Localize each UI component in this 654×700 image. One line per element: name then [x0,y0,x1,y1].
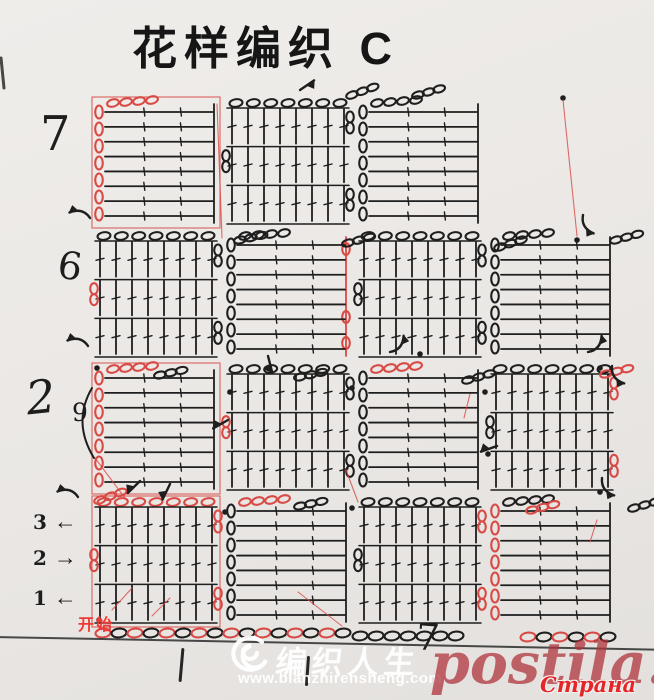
watermark-url: www.bianzhirensheng.com [238,670,442,687]
row-label-7: 7 [40,106,71,162]
bottom-row-label-2: 2 → [33,544,75,571]
row-number: 3 [33,510,47,534]
row-label-2: 2 [23,369,58,426]
crochet-chart [0,0,654,700]
row-direction-arrow-icon: → [54,544,75,571]
page-title: 花样编织 C [132,12,399,77]
chain-count-label-9: 9 [72,398,88,427]
row-number: 1 [33,586,47,610]
row-number: 2 [33,546,47,570]
page-background: 花样编织 C 7 6 2 9 3 ← 2 → 1 ← 开始 7 编织人生 www… [0,0,654,700]
bottom-row-label-3: 3 ← [33,508,75,535]
row-direction-arrow-icon: ← [54,508,75,535]
bottom-row-label-1: 1 ← [33,584,75,611]
start-label: 开始 [78,611,114,635]
row-direction-arrow-icon: ← [54,584,75,611]
watermark-strana-mam: Страна Мам [540,672,654,700]
